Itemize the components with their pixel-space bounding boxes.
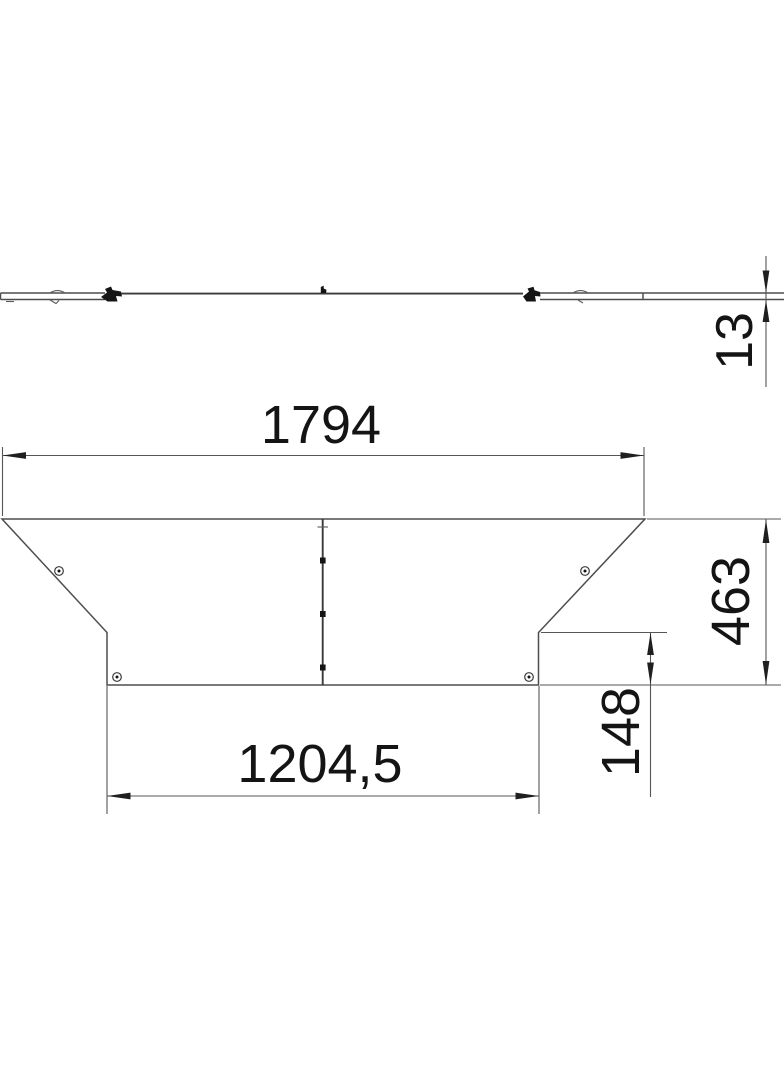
seam-rivet [320,558,326,564]
plan-view: 1794 1204,5 463 148 [2,395,781,814]
latch-tab-right [578,300,583,303]
latch-tab-left [50,300,59,304]
seam-rivet [320,611,326,617]
screw-head [113,673,122,682]
arrow-down [763,661,770,685]
dimension-bottom-width: 1204,5 [107,686,539,814]
dim-label-overall-depth: 463 [701,556,761,646]
seam-rivet [320,665,326,671]
dimension-overall-width: 1794 [3,395,645,516]
dimension-branch-offset: 148 [541,633,667,798]
center-seam [318,519,329,686]
arrow-up [763,520,770,544]
dim-label-overall-width: 1794 [261,395,381,455]
arrow-up [647,633,654,655]
screw-head [55,567,64,576]
side-right-plate [540,291,784,303]
drawing-canvas: 13 [0,0,784,1066]
technical-drawing: 13 [0,0,784,1066]
dim-label-branch-offset: 148 [591,687,651,777]
arrow-down [763,271,770,293]
side-view: 13 [1,256,784,387]
screw-head [525,673,534,682]
arrow-down [647,663,654,685]
screw-head [581,567,590,576]
side-left-plate [1,291,106,304]
dim-label-bottom-width: 1204,5 [237,734,402,794]
turnbuckle-clip-right [523,287,541,302]
arrow-left [3,452,27,459]
arrow-right [516,793,540,800]
arrow-right [621,452,645,459]
dimension-thickness: 13 [706,256,769,387]
side-center-rivet [321,286,327,293]
arrow-left [107,793,131,800]
dimension-overall-depth: 463 [540,519,781,685]
dim-label-thickness: 13 [706,312,764,370]
